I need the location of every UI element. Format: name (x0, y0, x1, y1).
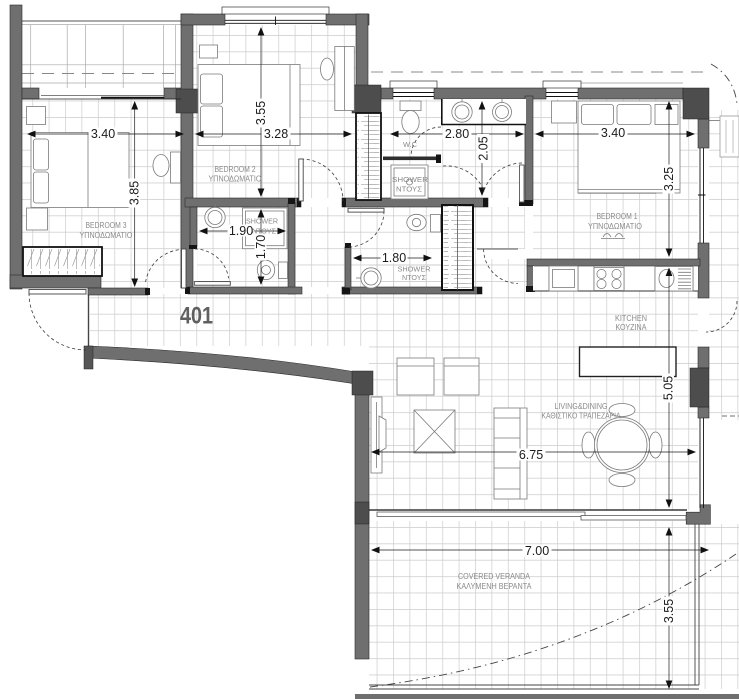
svg-text:ΝΤΟΥΣ: ΝΤΟΥΣ (402, 273, 426, 282)
svg-text:5.05: 5.05 (661, 376, 675, 400)
svg-text:BEDROOM 2: BEDROOM 2 (215, 164, 256, 174)
svg-text:BEDROOM 3: BEDROOM 3 (86, 220, 127, 230)
svg-text:ΥΠΝΟΔΩΜΑΤΙΟ: ΥΠΝΟΔΩΜΑΤΙΟ (80, 230, 133, 240)
svg-text:3.85: 3.85 (128, 181, 142, 205)
svg-text:LIVING&DINING: LIVING&DINING (555, 402, 608, 411)
svg-text:3.55: 3.55 (254, 101, 268, 125)
svg-text:ΥΠΝΟΔΩΜΑΤΙΟ: ΥΠΝΟΔΩΜΑΤΙΟ (588, 221, 642, 231)
svg-text:ΥΠΝΟΔΩΜΑΤΙΟ: ΥΠΝΟΔΩΜΑΤΙΟ (209, 174, 262, 184)
svg-text:KITCHEN: KITCHEN (615, 314, 647, 323)
svg-text:COVERED VERANDA: COVERED VERANDA (458, 572, 531, 581)
svg-text:BEDROOM 1: BEDROOM 1 (597, 211, 638, 221)
svg-text:6.75: 6.75 (519, 448, 543, 462)
svg-text:3.40: 3.40 (601, 126, 625, 140)
svg-text:ΚΑΛΥΜΕΝΗ ΒΕΡΑΝΤΑ: ΚΑΛΥΜΕΝΗ ΒΕΡΑΝΤΑ (457, 582, 533, 591)
svg-text:SHOWER: SHOWER (246, 217, 279, 226)
svg-text:401: 401 (180, 303, 213, 330)
svg-text:3.25: 3.25 (662, 167, 676, 191)
svg-text:W.C: W.C (403, 142, 417, 149)
svg-text:ΝΤΟΥΣ: ΝΤΟΥΣ (396, 185, 422, 194)
svg-text:1.80: 1.80 (382, 251, 406, 265)
svg-text:1.90: 1.90 (229, 224, 253, 238)
svg-text:7.00: 7.00 (525, 544, 549, 558)
svg-text:ΝΤΟΥΣ: ΝΤΟΥΣ (252, 227, 276, 236)
svg-text:SHOWER: SHOWER (392, 175, 429, 184)
svg-text:2.80: 2.80 (445, 127, 469, 141)
svg-text:ΚΑΘΙΣΤΙΚΟ ΤΡΑΠΕΖΑΡΙΑ: ΚΑΘΙΣΤΙΚΟ ΤΡΑΠΕΖΑΡΙΑ (542, 412, 622, 421)
svg-text:1.70: 1.70 (254, 235, 268, 259)
svg-text:3.28: 3.28 (264, 127, 288, 141)
svg-text:3.40: 3.40 (91, 127, 115, 141)
svg-text:ΚΟΥΖΙΝΑ: ΚΟΥΖΙΝΑ (616, 323, 648, 332)
svg-text:2.05: 2.05 (476, 136, 490, 160)
svg-text:3.55: 3.55 (662, 599, 676, 623)
